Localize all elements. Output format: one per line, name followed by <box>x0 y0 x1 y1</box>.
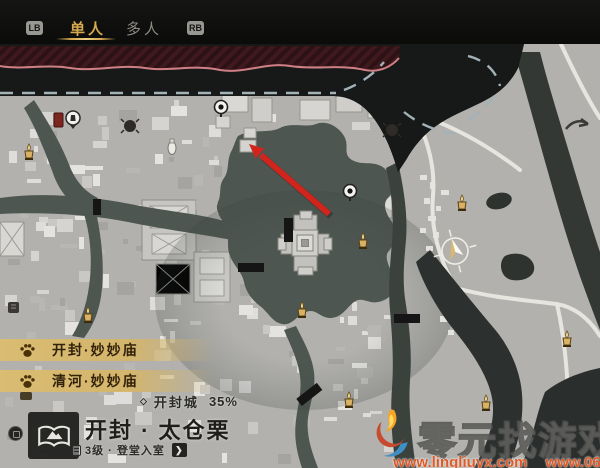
rb-button[interactable]: RB <box>187 21 204 35</box>
location-subtitle: 3级 · 登堂入室 ❯ <box>72 442 187 458</box>
location-title: 开封 · 太仓栗 <box>85 413 231 445</box>
scroll-mountain-icon <box>35 420 73 452</box>
top-tab-bar: LB 单人 多人 RB <box>0 0 600 44</box>
paw-icon <box>19 374 36 389</box>
watermark-urls: www.lingliuyx.com www.06zyx.com <box>393 454 600 468</box>
watermark-url-left: www.lingliuyx.com <box>393 454 527 468</box>
poi-list-item-kaifeng-temple[interactable]: 开封·妙妙庙 <box>0 339 214 361</box>
expand-chevron-button[interactable]: ❯ <box>172 443 187 457</box>
poi-label: 开封·妙妙庙 <box>52 340 139 360</box>
poi-label: 清河·妙妙庙 <box>52 371 139 391</box>
region-name: 开封城 <box>154 392 199 411</box>
watermark-url-right: www.06zyx.com <box>545 454 600 468</box>
region-progress: ◇ 开封城 35% <box>140 392 238 411</box>
region-progress-value: 35% <box>209 394 238 409</box>
red-jar-marker[interactable] <box>54 113 63 127</box>
paw-icon <box>19 343 36 358</box>
watermark-logo <box>369 407 411 461</box>
tab-multi-player[interactable]: 多人 <box>126 18 162 39</box>
poi-list-item-qinghe-temple[interactable]: 清河·妙妙庙 <box>0 370 214 392</box>
diamond-bullet-icon: ◇ <box>140 396 147 407</box>
lb-button[interactable]: LB <box>26 21 43 35</box>
world-map[interactable] <box>0 0 600 468</box>
location-level-text: 3级 · 登堂入室 <box>85 442 165 458</box>
active-tab-underline <box>56 38 116 40</box>
hotkey-badge[interactable] <box>8 426 23 441</box>
level-scroll-icon <box>72 445 81 456</box>
tab-single-player[interactable]: 单人 <box>70 18 106 39</box>
game-map-screen: LB 单人 多人 RB 开封·妙妙庙 清河·妙妙庙 ◇ 开封城 35% <box>0 0 600 468</box>
